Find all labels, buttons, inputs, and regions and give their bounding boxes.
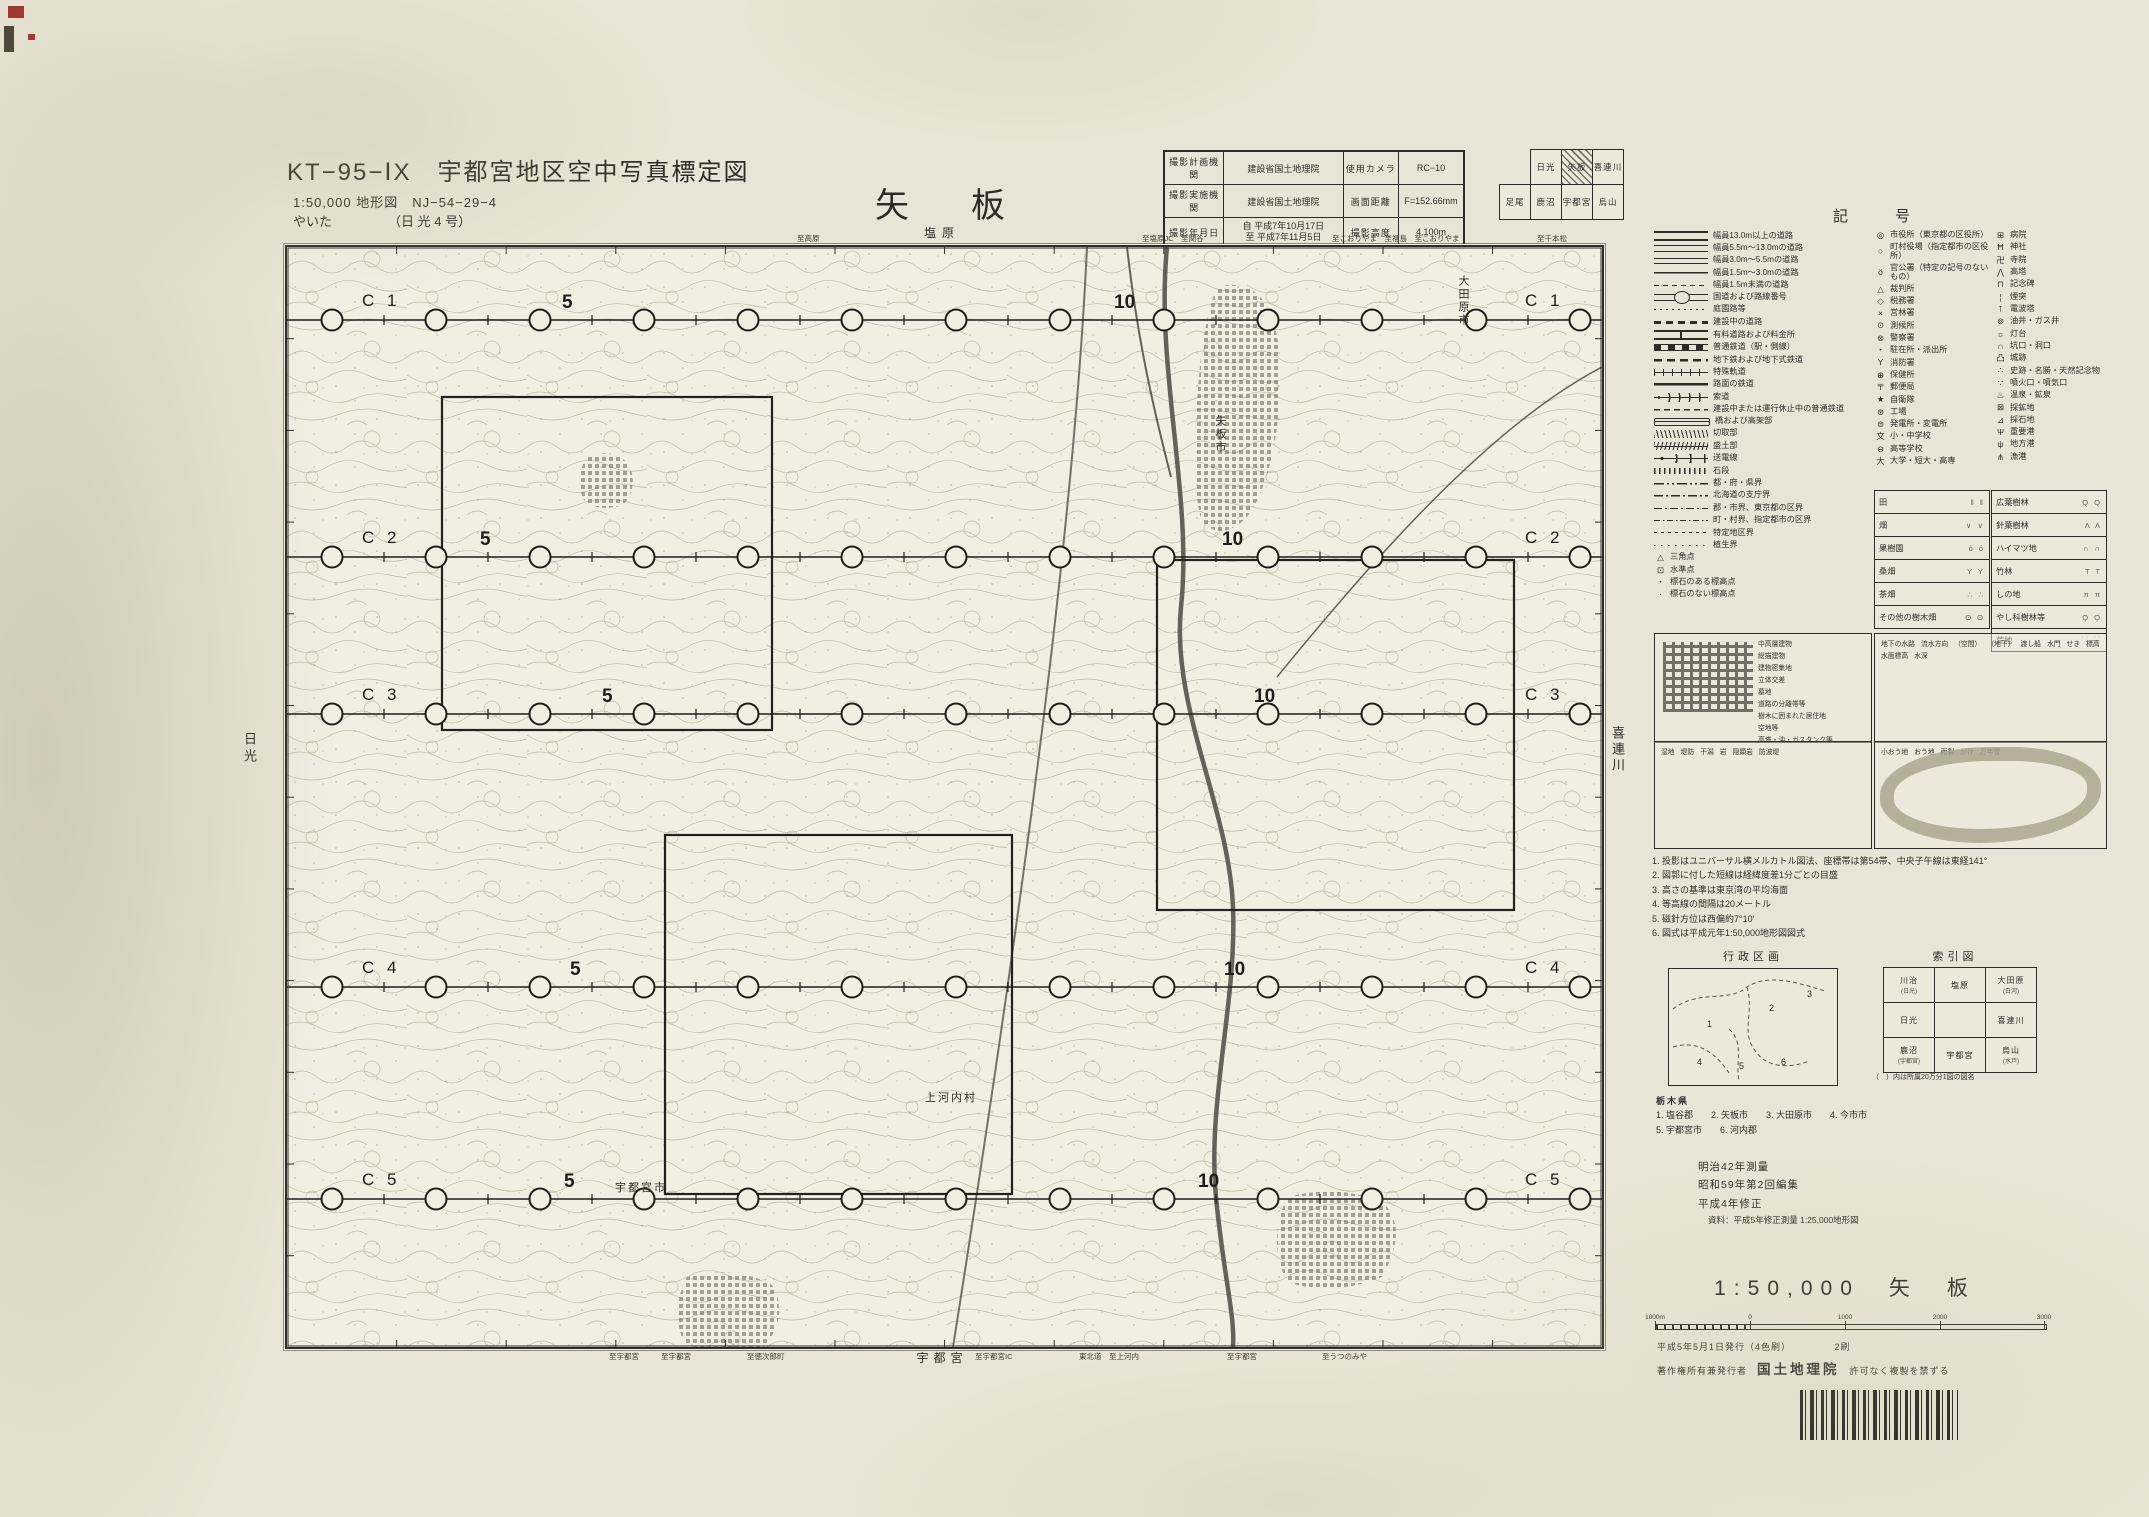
speck-texture [287, 247, 1602, 1347]
photo-table-row: 撮影計画機関建設省国土地理院使用カメラRC−10 [1165, 152, 1463, 184]
photo-center-circle [1466, 1189, 1487, 1210]
prefecture-item: 6. 河内郡 [1720, 1125, 1757, 1135]
landuse-glyph: Q Q [2082, 498, 2102, 507]
legend-symbol [1654, 380, 1708, 389]
legend-symbol [1654, 268, 1708, 277]
adjoining-sheet-north: 塩原 [892, 224, 992, 241]
legend-item-label: 温泉・鉱泉 [2010, 391, 2107, 400]
legend-item-label: 病院 [2010, 231, 2107, 240]
topographic-map: C 1C 1510C 2C 2510C 3C 3510C 4C 4510C 5C… [285, 245, 1604, 1349]
legend-item-label: 橋および高架部 [1715, 417, 1868, 426]
index-map-cell: 鹿沼(宇都宮) [1883, 1037, 1935, 1073]
edition-text: 2刷 [1835, 1342, 1851, 1352]
legend-item: ◇税務署 [1874, 297, 1990, 306]
prefecture-items: 1. 塩谷郡2. 矢板市3. 大田原市4. 今市市5. 宇都宮市6. 河内郡 [1656, 1108, 2006, 1137]
legend-example-label: 流水方向 [1921, 638, 1948, 648]
legend-example-label: （地下） [1987, 638, 2014, 648]
legend-item-label: 標石のない標高点 [1670, 590, 1868, 599]
legend-symbol: ⋔ [1994, 453, 2007, 462]
legend-example-label: 湿地 [1661, 746, 1675, 756]
index-map-title: 索引図 [1880, 948, 2030, 964]
landuse-label: やし科樹林等 [1996, 611, 2045, 623]
coverage-grid-cell: 宇都宮 [1561, 184, 1593, 220]
legend-symbol: 大 [1874, 457, 1887, 466]
landuse-cell: 竹林T T [1991, 559, 2107, 583]
legend-example-label: 水門 [2047, 638, 2061, 648]
photo-center-circle [946, 547, 967, 568]
coverage-index-grid: 日光矢板喜連川足尾鹿沼宇都宮烏山 [1500, 150, 1624, 220]
survey-history-line: 昭和59年第2回編集 [1698, 1176, 1859, 1194]
legend-item-label: 郵便局 [1890, 383, 1990, 392]
legend-symbol [1654, 516, 1708, 525]
index-map-cell-sub: (日光) [1901, 986, 1917, 995]
landuse-label: しの地 [1996, 588, 2021, 600]
admin-area-number: 5 [1739, 1061, 1744, 1071]
road-destination-label: 至高原 [797, 233, 820, 244]
legend-item: 有料道路および料金所 [1654, 330, 1868, 340]
legend-symbol: Ψ [1994, 428, 2007, 437]
legend-item-label: 特定地区界 [1713, 529, 1868, 538]
series-title: KT−95−ⅠX 宇都宮地区空中写真標定図 [287, 152, 749, 187]
legend-example-label: せき [2067, 638, 2081, 648]
legend-item-label: 噴火口・噴気口 [2010, 379, 2107, 388]
index-map-cell-name: 川治 [1900, 975, 1918, 986]
road-destination-label: 至宇都宮IC [975, 1351, 1013, 1362]
legend-item: ⊺電波塔 [1994, 305, 2107, 314]
photo-center-circle [634, 310, 655, 331]
legend-symbol [1654, 528, 1708, 537]
legend-item: 凸城跡 [1994, 354, 2107, 363]
admin-area-number: 1 [1707, 1019, 1712, 1029]
legend-item: 索道 [1654, 393, 1868, 402]
legend-item: 送電線 [1654, 454, 1868, 463]
legend-item-label: 地下鉄および地下式鉄道 [1713, 356, 1868, 365]
legend-item-label: 幅員3.0m〜5.5mの道路 [1713, 256, 1868, 265]
legend-symbol: 卍 [1994, 256, 2007, 265]
scale-bar-tick [1750, 1321, 1751, 1329]
legend-symbol [1654, 245, 1708, 252]
photo-table-cell: 撮影計画機関 [1165, 152, 1224, 184]
prefecture-name: 栃木県 [1656, 1094, 2006, 1108]
legend-item-label: 煙突 [2010, 293, 2107, 302]
index-map-cell-name: 日光 [1900, 1015, 1918, 1026]
publication-date-text: 平成5年5月1日発行（4色刷） [1657, 1342, 1791, 1352]
legend-item-label: 発電所・変電所 [1890, 420, 1990, 429]
legend-item: Ψ重要港 [1994, 428, 2107, 437]
photo-center-circle [1154, 310, 1175, 331]
legend-example-label: 建物密集地 [1758, 662, 1792, 672]
photo-table-cell: 自 平成7年10月17日至 平成7年11月5日 [1224, 218, 1343, 247]
photo-center-circle [1050, 547, 1071, 568]
legend-item-label: 裁判所 [1890, 285, 1990, 294]
legend-item: ⊠採鉱地 [1994, 403, 2107, 412]
landuse-glyph: ∩ ∩ [2083, 544, 2102, 553]
legend-example-label: 岩 [1720, 746, 1727, 756]
admin-area-number: 4 [1697, 1057, 1702, 1067]
prefecture-item: 3. 大田原市 [1766, 1110, 1812, 1120]
map-note: 4. 等高線の間隔は20メートル [1652, 897, 2000, 911]
legend-item: ♨温泉・鉱泉 [1994, 391, 2107, 400]
legend-symbol [1654, 541, 1708, 550]
legend-item-label: 索道 [1713, 393, 1868, 402]
photo-center-circle [1258, 547, 1279, 568]
legend-item-label: 重要港 [2010, 428, 2107, 437]
legend-item: ⊓記念碑 [1994, 280, 2107, 289]
legend-item: 〒郵便局 [1874, 383, 1990, 392]
legend-item: △裁判所 [1874, 285, 1990, 294]
legend-example-label: 道路の分離帯等 [1758, 698, 1806, 708]
flight-line-label-right: C 3 [1525, 685, 1563, 704]
scale-bar-tick [1940, 1321, 1941, 1329]
legend-item-label: 高等学校 [1890, 445, 1990, 454]
map-notes: 1. 投影はユニバーサル横メルカトル図法、座標帯は第54帯、中央子午線は東経14… [1652, 854, 2000, 940]
registration-mark [28, 34, 35, 40]
photo-center-circle [1570, 547, 1591, 568]
reproduction-notice: 許可なく複製を禁ずる [1850, 1364, 1950, 1377]
legend-item-label: 町村役場（指定都市の区役所） [1890, 243, 1990, 260]
photo-center-circle [530, 704, 551, 725]
landuse-glyph: Ϙ Ϙ [2082, 613, 2102, 622]
photo-center-circle [1570, 310, 1591, 331]
legend-item-label: 幅員13.0m以上の道路 [1713, 232, 1868, 241]
legend-symbol [1654, 355, 1708, 364]
legend-symbol: ∩ [1994, 342, 2007, 351]
legend-symbol [1654, 479, 1708, 488]
landuse-cell: 針葉樹林Λ Λ [1991, 513, 2107, 537]
legend-symbol: ⊠ [1994, 403, 2007, 412]
landuse-label: 果樹園 [1879, 542, 1904, 554]
legend-item: ⊕保健所 [1874, 371, 1990, 380]
legend-example-label: 空地等 [1758, 722, 1778, 732]
coverage-grid-cell: 日光 [1530, 149, 1562, 185]
legend-example-label: 堤防 [1681, 746, 1695, 756]
legend-item: ・駐在所・派出所 [1874, 346, 1990, 355]
legend-symbol [1654, 405, 1708, 414]
legend-item: 卍寺院 [1994, 256, 2107, 265]
legend-item-label: 有料道路および料金所 [1713, 331, 1868, 340]
legend-symbol [1654, 330, 1708, 340]
registration-mark [8, 6, 24, 18]
legend-example-contour: 小おう地おう地雨裂がけ万年雪 [1874, 741, 2107, 849]
legend-symbol: ⊜ [1874, 420, 1887, 429]
legend-item-label: 税務署 [1890, 297, 1990, 306]
legend-item-label: 自衛隊 [1890, 396, 1990, 405]
photo-center-circle [1362, 977, 1383, 998]
legend-item: 植生界 [1654, 541, 1868, 550]
survey-source-line: 資料：平成5年修正測量 1:25,000地形図 [1698, 1213, 1859, 1228]
photo-number-ten: 10 [1114, 292, 1135, 313]
flight-line-label-right: C 4 [1525, 958, 1563, 977]
photo-center-circle [1050, 310, 1071, 331]
scale-bar-tick [1655, 1321, 1656, 1329]
legend-item: 郡・市界、東京都の区界 [1654, 504, 1868, 513]
legend-item-label: 高塔 [2010, 268, 2107, 277]
scale-bar-label: 0 [1748, 1314, 1752, 1321]
landuse-glyph: ʘ ʘ [1965, 613, 1985, 622]
index-map-cell: 宇都宮 [1934, 1037, 1986, 1073]
photo-center-circle [426, 547, 447, 568]
legend-symbol: ∴ [1994, 366, 2007, 375]
road-destination-label: 至こおりやま 至福島 至こおりやま [1332, 233, 1460, 244]
legend-item-label: 官公署（特定の記号のないもの） [1890, 264, 1990, 281]
landuse-label: その他の樹木畑 [1879, 611, 1936, 623]
legend-item: ⊖高等学校 [1874, 445, 1990, 454]
flight-line-label-left: C 4 [362, 958, 400, 977]
legend-example-label: 立体交差 [1758, 674, 1785, 684]
legend-item: 幅員1.5m〜3.0mの道路 [1654, 268, 1868, 277]
legend-symbol [1654, 504, 1708, 513]
legend-item-label: 駐在所・派出所 [1890, 346, 1990, 355]
place-name-label: 大田原市 [1455, 275, 1471, 327]
landuse-glyph: ό ό [1969, 544, 1985, 553]
legend-item-label: 城跡 [2010, 354, 2107, 363]
legend-symbol [1654, 418, 1710, 426]
legend-item: ⊚油井・ガス井 [1994, 317, 2107, 326]
legend-item: 大大学・短大・高専 [1874, 457, 1990, 466]
photo-center-circle [1050, 1189, 1071, 1210]
prefecture-item: 4. 今市市 [1830, 1110, 1867, 1120]
legend-item: 石段 [1654, 466, 1868, 475]
legend-item-label: 地方港 [2010, 440, 2107, 449]
road-destination-label: 至徳次郎町 [747, 1351, 785, 1362]
photo-center-circle [738, 547, 759, 568]
legend-item: 特定地区界 [1654, 528, 1868, 537]
photo-center-circle [842, 310, 863, 331]
legend-item: ⊛工場 [1874, 408, 1990, 417]
photo-number-five: 5 [564, 1171, 575, 1192]
legend-symbol: 凸 [1994, 354, 2007, 363]
index-map-cell: 日光 [1883, 1002, 1935, 1038]
legend-symbol [1654, 344, 1708, 351]
legend-item: ⊞病院 [1994, 231, 2107, 240]
photo-center-circle [1362, 704, 1383, 725]
legend-symbol: Ħ [1994, 243, 2007, 252]
coverage-grid-row: 足尾鹿沼宇都宮烏山 [1500, 185, 1624, 220]
legend-item: 普通鉄道（駅・側線） [1654, 343, 1868, 352]
photo-center-circle [842, 977, 863, 998]
legend-symbol: ⊞ [1994, 231, 2007, 240]
legend-symbol [1654, 231, 1708, 241]
legend-item: 幅員1.5m未満の道路 [1654, 281, 1868, 290]
photo-center-circle [946, 1189, 967, 1210]
photo-center-circle [1362, 1189, 1383, 1210]
legend-symbol: ¦ [1994, 293, 2007, 302]
legend-item: 文小・中学校 [1874, 432, 1990, 441]
map-note: 1. 投影はユニバーサル横メルカトル図法、座標帯は第54帯、中央子午線は東経14… [1652, 854, 2000, 868]
legend-example-label: 渡し船 [2021, 638, 2041, 648]
photo-number-ten: 10 [1198, 1171, 1219, 1192]
legend-example-label: 標高 [2086, 638, 2100, 648]
legend-lines-column: 幅員13.0m以上の道路幅員5.5m〜13.0mの道路幅員3.0m〜5.5mの道… [1654, 231, 1868, 602]
legend-symbol: ⊿ [1994, 416, 2007, 425]
legend-item-label: 幅員1.5m未満の道路 [1713, 281, 1868, 290]
flight-line-label-left: C 2 [362, 528, 400, 547]
photo-table-cell: 建設省国土地理院 [1224, 152, 1343, 184]
landuse-label: 桑畑 [1879, 565, 1895, 577]
coverage-grid-cell: 鹿沼 [1530, 184, 1562, 220]
survey-history: 明治42年測量昭和59年第2回編集平成4年修正資料：平成5年修正測量 1:25,… [1698, 1158, 1859, 1228]
legend-item: 建設中の道路 [1654, 318, 1868, 327]
landuse-glyph: ‖ ‖ [1971, 498, 1985, 507]
legend-item-label: 警察署 [1890, 334, 1990, 343]
admin-area-number: 3 [1807, 989, 1812, 999]
legend-item-label: 標石のある標高点 [1670, 578, 1868, 587]
legend-item-label: 史跡・名勝・天然記念物 [2010, 367, 2107, 376]
photo-table-row: 撮影実施機関建設省国土地理院画面距離F=152.66mm [1165, 184, 1463, 217]
legend-item: 幅員3.0m〜5.5mの道路 [1654, 256, 1868, 265]
legend-symbol: ♨ [1994, 391, 2007, 400]
index-map-cell: 川治(日光) [1883, 967, 1935, 1003]
legend-example-label: 地下の水路 [1881, 638, 1915, 648]
index-map-cell-name: 喜連川 [1998, 1015, 2025, 1026]
legend-symbol: · [1654, 590, 1667, 599]
legend-symbol: ψ [1994, 440, 2007, 449]
legend-symbol: ◇ [1874, 297, 1887, 306]
scale-and-sheet-name: 1:50,000 矢 板 [1700, 1272, 1990, 1302]
map-note: 2. 図郭に付した短線は経緯度差1分ごとの目盛 [1652, 868, 2000, 882]
legend-example-label: 水面標高 [1881, 650, 1908, 660]
landuse-glyph: ∨ ∨ [1966, 521, 1985, 530]
index-map-note: （ ）内は所属20万分1図の図名 [1872, 1072, 2052, 1082]
legend-example-label: 雨裂 [1941, 746, 1955, 756]
landuse-glyph: Y Y [1967, 567, 1985, 576]
scale-bar: 1000m0100020003000 [1655, 1314, 2045, 1332]
landuse-cell: 茶畑∴ ∴ [1874, 582, 1990, 606]
legend-symbol [1654, 318, 1708, 327]
photo-center-circle [1362, 547, 1383, 568]
legend-symbol: ∵ [1994, 379, 2007, 388]
photo-center-circle [1154, 704, 1175, 725]
photo-center-circle [738, 977, 759, 998]
legend-item: ⊗警察署 [1874, 334, 1990, 343]
photo-center-circle [530, 1189, 551, 1210]
flight-line-label-right: C 5 [1525, 1170, 1563, 1189]
photo-center-circle [946, 310, 967, 331]
legend-example-label: 干潟 [1700, 746, 1714, 756]
photo-center-circle [530, 547, 551, 568]
legend-item-label: 記念碑 [2010, 280, 2107, 289]
legend-example-urban: 中高層建物総描建物建物密集地立体交差墓地道路の分離帯等樹木に囲まれた居住地空地等… [1654, 633, 1872, 743]
legend-item-label: 油井・ガス井 [2010, 317, 2107, 326]
legend-example-label: 水深 [1914, 650, 1928, 660]
prefecture-item: 1. 塩谷郡 [1656, 1110, 1693, 1120]
road-destination-label: 至塩原JC 至関谷 [1142, 233, 1204, 244]
admin-area-number: 6 [1781, 1057, 1786, 1067]
landuse-column: 広葉樹林Q Q針葉樹林Λ Λハイマツ地∩ ∩竹林T Tしの地π πやし科樹林等Ϙ… [1991, 491, 2107, 652]
photo-center-circle [842, 704, 863, 725]
legend-item: ◎市役所（東京都の区役所） [1874, 231, 1990, 240]
photo-center-circle [946, 977, 967, 998]
scale-bar-label: 1000m [1645, 1314, 1665, 1321]
index-map-cell-name: 大田原 [1998, 975, 2025, 986]
photo-number-five: 5 [602, 686, 613, 707]
road-destination-label: 至宇都宮 [1227, 1351, 1257, 1362]
photo-number-five: 5 [570, 959, 581, 980]
landuse-column: 田‖ ‖畑∨ ∨果樹園ό ό桑畑Y Y茶畑∴ ∴その他の樹木畑ʘ ʘ [1874, 491, 1990, 629]
photo-center-circle [426, 310, 447, 331]
map-name-note: （日 光 4 号） [388, 211, 471, 230]
legend-symbol: ⊗ [1874, 334, 1887, 343]
legend-symbol: ⊚ [1994, 317, 2007, 326]
legend-symbol: ⊙ [1874, 321, 1887, 330]
prefecture-items-line: 5. 宇都宮市6. 河内郡 [1656, 1123, 2006, 1137]
legend-item-label: 植生界 [1713, 541, 1868, 550]
landuse-glyph: π π [2084, 590, 2102, 599]
legend-item-label: 三角点 [1670, 553, 1868, 562]
legend-symbol: 〒 [1874, 383, 1887, 392]
legend-example-water: 地下の水路流水方向（空間）（地下）渡し船水門せき標高水面標高水深 [1874, 633, 2107, 743]
road-destination-label: 至宇都宮 [661, 1351, 691, 1362]
legend-item: 橋および高架部 [1654, 417, 1868, 426]
legend-symbol: ⊖ [1874, 445, 1887, 454]
legend-item: ∩坑口・洞口 [1994, 342, 2107, 351]
legend-item-label: 灯台 [2010, 330, 2107, 339]
legend-item-label: 北海道の支庁界 [1713, 491, 1868, 500]
legend-item: 盛土部 [1654, 442, 1868, 451]
legend-item: 地下鉄および地下式鉄道 [1654, 355, 1868, 364]
photo-center-circle [322, 1189, 343, 1210]
legend-item: 幅員5.5m〜13.0mの道路 [1654, 244, 1868, 253]
photo-center-circle [426, 977, 447, 998]
legend-item: ⊜発電所・変電所 [1874, 420, 1990, 429]
photo-table-cell: 使用カメラ [1344, 152, 1399, 184]
prefecture-item: 2. 矢板市 [1711, 1110, 1748, 1120]
legend-example-label: （空間） [1954, 638, 1981, 648]
publication-date: 平成5年5月1日発行（4色刷） 2刷 [1657, 1340, 1851, 1353]
landuse-cell: やし科樹林等Ϙ Ϙ [1991, 605, 2107, 629]
photo-center-circle [322, 704, 343, 725]
legend-item-label: 工場 [1890, 408, 1990, 417]
legend-item-label: 国道および路線番号 [1713, 293, 1868, 302]
adjoining-sheet-east: 喜連川 [1608, 726, 1627, 774]
legend-symbol: △ [1874, 285, 1887, 294]
legend-title: 記 号 [1652, 205, 2107, 226]
legend-symbol: ★ [1874, 395, 1887, 404]
legend-symbol: ☼ [1994, 330, 2007, 339]
photo-center-circle [634, 704, 655, 725]
legend-item-label: 坑口・洞口 [2010, 342, 2107, 351]
flight-line-label-right: C 2 [1525, 528, 1563, 547]
legend-symbol: ⊺ [1994, 305, 2007, 314]
legend-item-label: 盛土部 [1713, 442, 1868, 451]
index-map-row: 日光喜連川 [1884, 1003, 2037, 1038]
coverage-grid-row: 日光矢板喜連川 [1500, 150, 1624, 185]
legend-item: ⋀高塔 [1994, 268, 2107, 277]
legend-item-label: 郡・市界、東京都の区界 [1713, 504, 1868, 513]
coverage-grid-cell: 烏山 [1592, 184, 1624, 220]
legend-symbol [1654, 281, 1708, 290]
legend-item: ★自衛隊 [1874, 395, 1990, 404]
legend-example-label: 隠顕岩 [1733, 746, 1753, 756]
legend-item-label: 神社 [2010, 243, 2107, 252]
legend-symbol: ⋀ [1994, 268, 2007, 277]
legend-item-label: 営林署 [1890, 309, 1990, 318]
index-map-cell-name: 宇都宮 [1947, 1050, 1974, 1061]
map-name-kana: やいた [293, 211, 332, 230]
photo-number-five: 5 [562, 292, 573, 313]
photo-center-circle [530, 310, 551, 331]
photo-table-cell-line: 自 平成7年10月17日 [1226, 221, 1340, 232]
legend-item-label: 電波塔 [2010, 305, 2107, 314]
photo-table-cell: F=152.66mm [1399, 185, 1463, 217]
photo-table-cell-line: 至 平成7年11月5日 [1226, 232, 1340, 243]
registration-mark [4, 26, 14, 52]
photo-center-circle [1258, 977, 1279, 998]
index-map-cell-sub: (宇都宮) [1898, 1056, 1920, 1065]
legend-item: ö官公署（特定の記号のないもの） [1874, 264, 1990, 281]
photo-center-circle [1570, 704, 1591, 725]
legend-symbol: Y [1874, 358, 1887, 367]
